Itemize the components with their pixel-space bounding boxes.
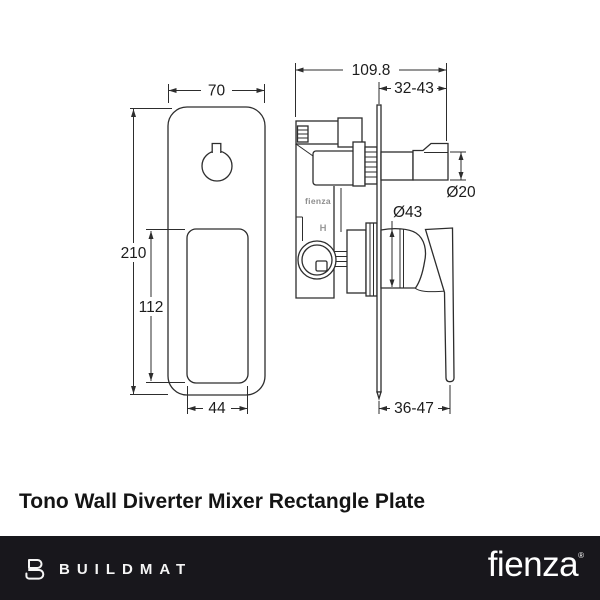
hot-marker-label: H <box>320 223 327 234</box>
dimension-112-label: 112 <box>139 299 164 316</box>
side-view-drawing: 109.8 32-43 <box>296 61 477 417</box>
escutcheon-flange <box>366 223 377 296</box>
cartridge-cap <box>353 142 365 186</box>
front-view-drawing: 70 210 112 <box>119 81 265 417</box>
extension-line <box>450 152 466 180</box>
product-title: Tono Wall Diverter Mixer Rectangle Plate <box>19 490 425 514</box>
registered-mark: ® <box>578 551 584 560</box>
fienza-logo: fienza® <box>488 545 584 585</box>
diverter-cartridge <box>313 151 355 185</box>
dimension-36-47-label: 36-47 <box>394 400 434 417</box>
wall-plate-tip <box>377 392 381 399</box>
buildmat-icon <box>22 556 48 581</box>
footer-bar: BUILDMAT fienza® <box>0 536 600 600</box>
valve-body: fienza H <box>296 118 377 298</box>
inlet-port-outer <box>298 241 336 279</box>
dimension-70-label: 70 <box>208 83 226 100</box>
buildmat-logo: BUILDMAT <box>22 556 192 581</box>
handle-lever <box>426 228 455 382</box>
knob-cap <box>413 144 448 181</box>
knob-base <box>381 152 413 180</box>
technical-drawing: 70 210 112 <box>0 0 600 470</box>
dimension-44-label: 44 <box>208 400 226 417</box>
body-brand-label: fienza <box>305 196 331 206</box>
dimension-32-43-label: 32-43 <box>394 80 434 97</box>
dimension-210-label: 210 <box>121 245 147 262</box>
diverter-button-cutout <box>202 151 232 181</box>
handle-cutout-front <box>187 229 248 383</box>
dimension-o43-label: Ø43 <box>393 204 422 221</box>
page: 70 210 112 <box>0 0 600 600</box>
dimension-109-8-label: 109.8 <box>352 62 391 79</box>
buildmat-wordmark: BUILDMAT <box>59 561 192 578</box>
spindle-adapter <box>365 147 377 184</box>
handle-collar <box>415 288 447 292</box>
dimension-o20-label: Ø20 <box>446 184 476 201</box>
fienza-wordmark: fienza <box>488 545 578 584</box>
diverter-knob <box>381 144 448 181</box>
mixer-cartridge <box>347 230 366 293</box>
